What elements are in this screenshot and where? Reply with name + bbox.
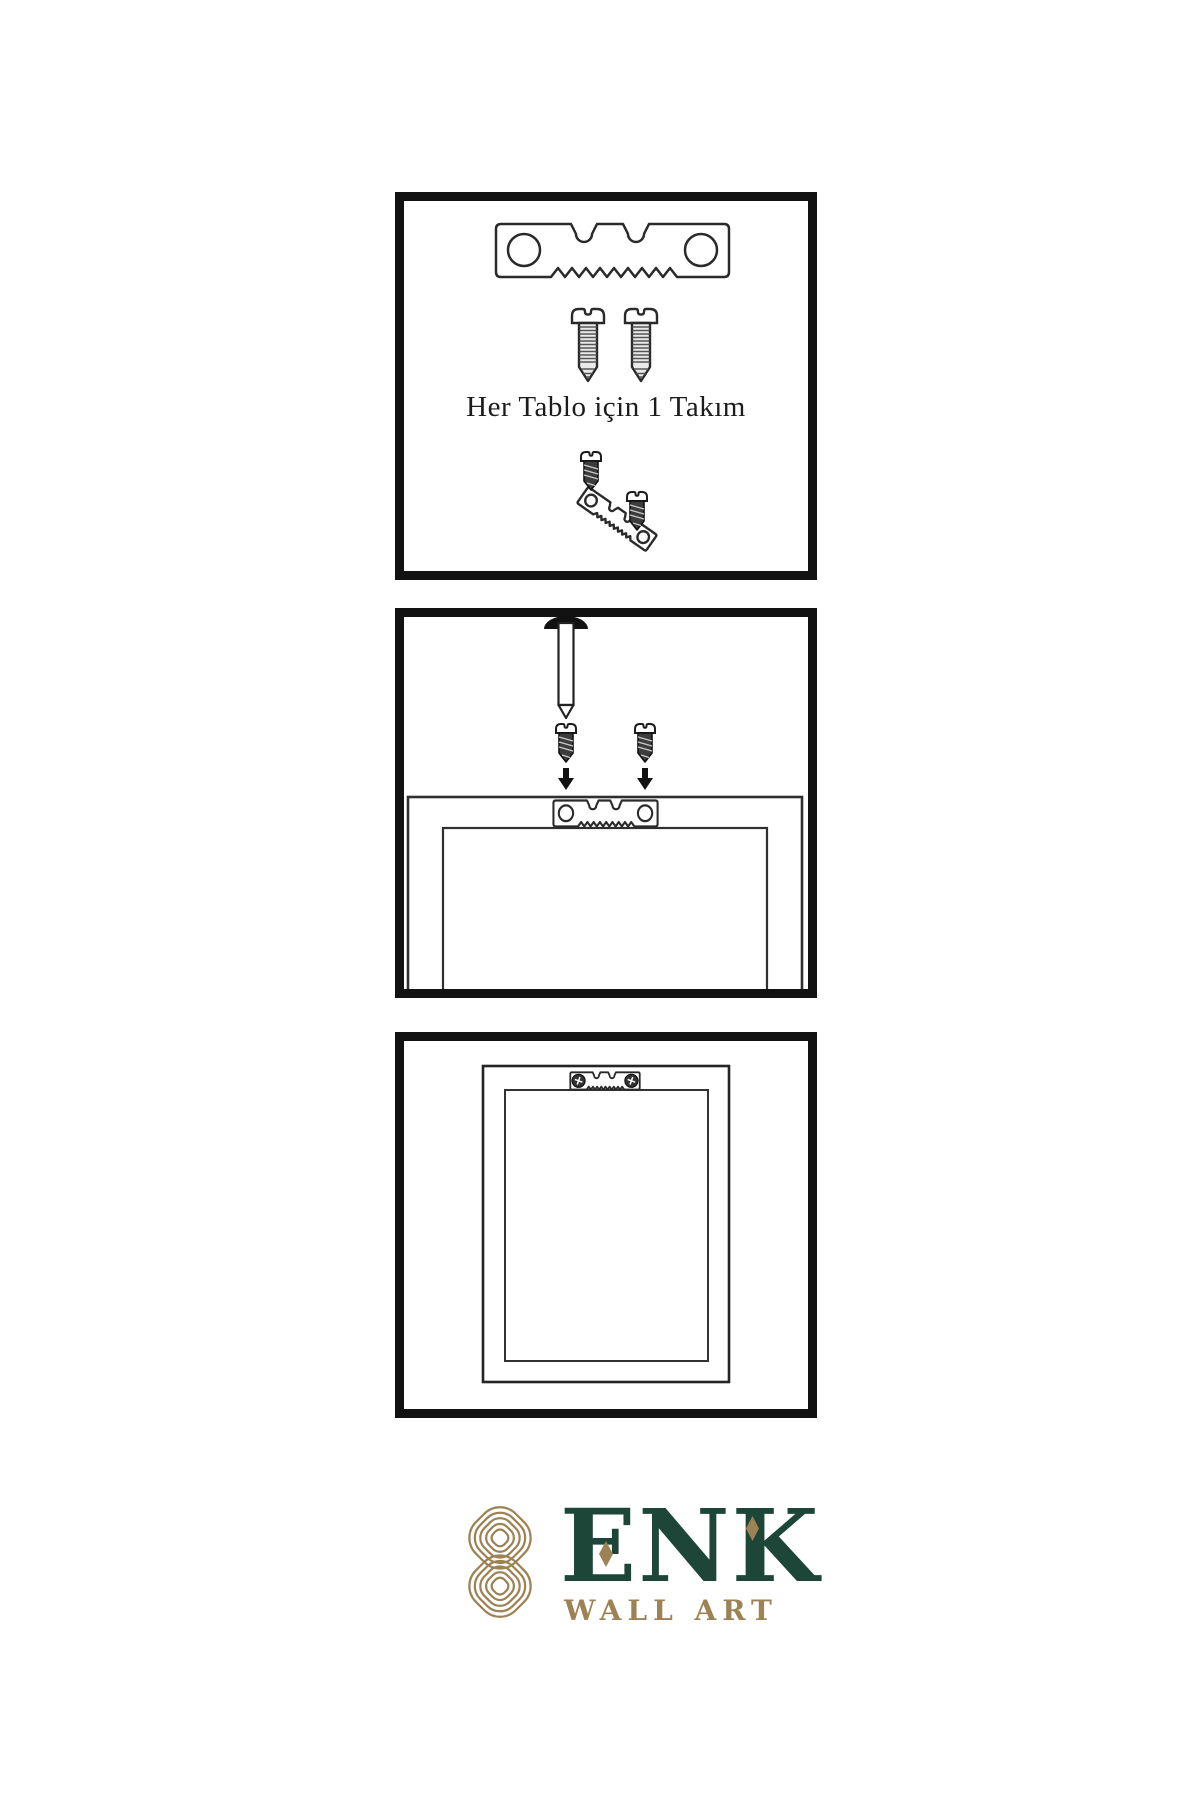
screw-icon bbox=[625, 309, 657, 381]
down-arrow-icon bbox=[558, 768, 574, 790]
mounting-illustration bbox=[404, 617, 808, 989]
hanging-kit-illustration bbox=[404, 201, 808, 571]
frame-back-illustration bbox=[408, 797, 802, 989]
dark-screw-icon bbox=[581, 452, 601, 490]
step-3-panel bbox=[395, 1032, 817, 1418]
frame-back-illustration bbox=[483, 1066, 729, 1382]
brand-name: ENK bbox=[560, 1496, 821, 1596]
screw-icon bbox=[572, 309, 604, 381]
down-arrow-icon bbox=[637, 768, 653, 790]
kit-caption: Her Tablo için 1 Takım bbox=[404, 391, 808, 424]
nail-icon bbox=[544, 617, 588, 718]
instruction-sheet: Her Tablo için 1 Takım bbox=[0, 0, 1200, 1800]
phillips-screw-head-icon bbox=[572, 1074, 585, 1087]
hung-frame-illustration bbox=[404, 1041, 808, 1409]
phillips-screw-head-icon bbox=[625, 1074, 638, 1087]
brand-subtitle: WALL ART bbox=[564, 1594, 778, 1627]
sawtooth-hanger-icon bbox=[553, 800, 657, 826]
step-1-panel: Her Tablo için 1 Takım bbox=[395, 192, 817, 580]
step-2-panel bbox=[395, 608, 817, 998]
logo-knot-icon bbox=[436, 1490, 564, 1634]
dark-screw-icon bbox=[556, 724, 576, 762]
dark-screw-icon bbox=[635, 724, 655, 762]
sawtooth-hanger-icon bbox=[496, 224, 729, 277]
